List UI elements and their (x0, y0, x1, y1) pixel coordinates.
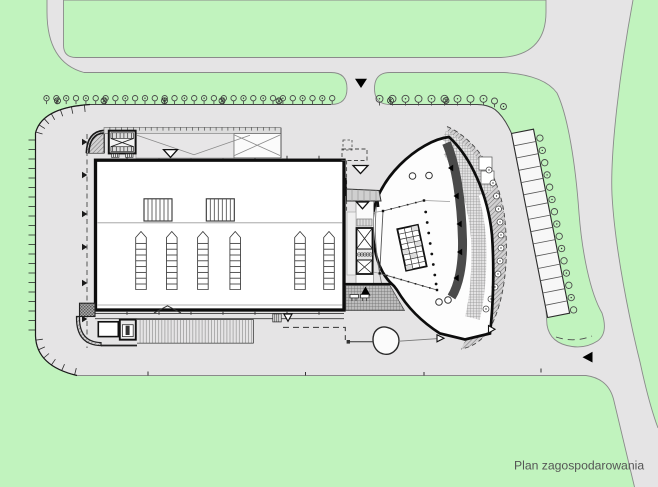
svg-text:Plan zagospodarowania: Plan zagospodarowania (514, 459, 644, 473)
